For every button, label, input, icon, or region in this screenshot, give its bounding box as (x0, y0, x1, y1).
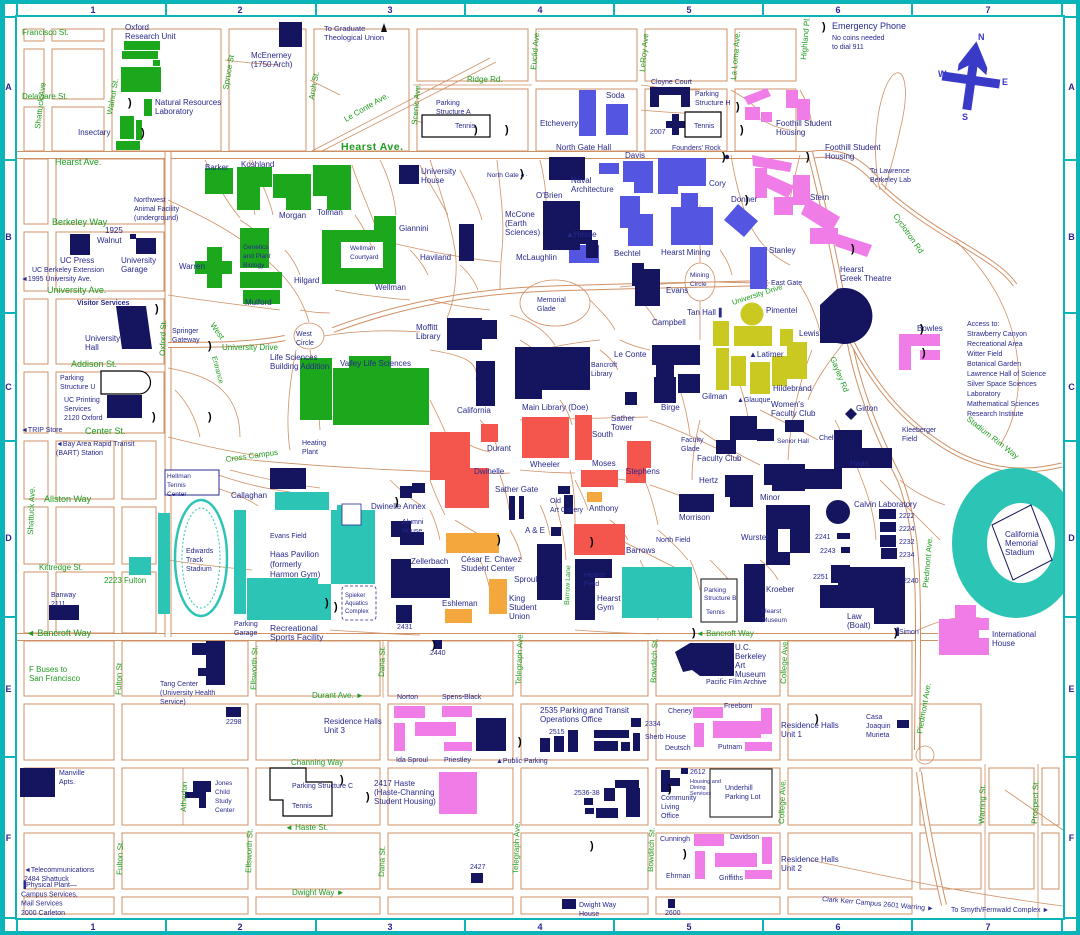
svg-text:Living: Living (661, 804, 679, 811)
svg-text:Structure U: Structure U (60, 384, 95, 391)
svg-text:Ehrman: Ehrman (666, 873, 691, 880)
svg-text:Cloyne Court: Cloyne Court (651, 79, 692, 86)
svg-text:): ) (474, 124, 478, 136)
svg-text:Parking: Parking (695, 91, 719, 98)
svg-text:Laboratory: Laboratory (155, 107, 193, 116)
svg-text:(Haste-Channing: (Haste-Channing (374, 788, 434, 797)
svg-text:◄1995 University Ave.: ◄1995 University Ave. (21, 276, 92, 283)
svg-text:Visitor Services: Visitor Services (77, 300, 130, 307)
svg-text:Callaghan: Callaghan (231, 491, 267, 500)
svg-text:F Buses to: F Buses to (29, 665, 68, 674)
svg-text:Barrow Lane: Barrow Lane (564, 565, 572, 605)
svg-text:S: S (962, 112, 968, 122)
svg-text:2224: 2224 (899, 526, 915, 533)
svg-text:Center: Center (215, 807, 235, 814)
svg-text:E: E (1002, 77, 1008, 87)
svg-text:◄Telecommunications: ◄Telecommunications (24, 867, 95, 874)
svg-text:Faculty Club: Faculty Club (771, 409, 816, 418)
svg-text:Davis: Davis (625, 151, 645, 160)
svg-text:UC Printing: UC Printing (64, 397, 100, 404)
svg-text:Stanley: Stanley (769, 246, 796, 255)
svg-text:Residence Halls: Residence Halls (324, 717, 382, 726)
svg-text:2298: 2298 (226, 719, 242, 726)
svg-text:Hearst Ave.: Hearst Ave. (55, 157, 101, 167)
svg-text:Telegraph Ave.: Telegraph Ave. (514, 632, 525, 685)
svg-text:Memorial: Memorial (537, 297, 566, 304)
svg-text:): ) (334, 601, 338, 613)
svg-text:◄Bay Area Rapid Transit: ◄Bay Area Rapid Transit (56, 441, 135, 448)
svg-text:): ) (141, 127, 145, 139)
svg-text:McCone: McCone (505, 210, 535, 219)
svg-text:Allston Way: Allston Way (44, 494, 92, 504)
svg-text:B: B (1068, 232, 1075, 242)
svg-text:Alumni: Alumni (402, 519, 424, 526)
svg-text:7: 7 (985, 5, 990, 15)
svg-text:(formerly: (formerly (270, 560, 302, 569)
svg-text:University: University (421, 167, 456, 176)
svg-text:To Lawrence: To Lawrence (870, 168, 910, 175)
svg-text:Hildebrand: Hildebrand (773, 384, 812, 393)
svg-text:): ) (518, 736, 522, 748)
svg-text:Giannini: Giannini (399, 224, 429, 233)
svg-text:Channing Way: Channing Way (291, 758, 343, 767)
svg-text:2007: 2007 (650, 129, 666, 136)
svg-text:Berkeley Way: Berkeley Way (52, 217, 108, 227)
svg-text:N: N (978, 32, 985, 42)
svg-text:Wellman: Wellman (350, 245, 376, 252)
svg-text:Natural Resources: Natural Resources (155, 98, 221, 107)
svg-text:Evans Field: Evans Field (270, 533, 307, 540)
svg-text:Oxford: Oxford (125, 23, 149, 32)
svg-text:Heating: Heating (302, 440, 326, 447)
svg-text:Dana St.: Dana St. (377, 646, 387, 677)
svg-text:): ) (822, 21, 826, 33)
svg-text:Wheeler: Wheeler (530, 460, 560, 469)
svg-text:Complex: Complex (345, 609, 369, 615)
svg-text:): ) (340, 774, 344, 786)
svg-text:▐Physical Plant—: ▐Physical Plant— (21, 880, 77, 890)
svg-text:Tennis: Tennis (167, 482, 187, 489)
svg-text:Campbell: Campbell (652, 318, 686, 327)
svg-text:Northwest: Northwest (134, 197, 166, 204)
svg-text:): ) (740, 124, 744, 136)
svg-text:Etcheverry: Etcheverry (540, 119, 578, 128)
svg-text:UC Berkeley Extension: UC Berkeley Extension (32, 267, 104, 274)
svg-text:Joaquin: Joaquin (866, 723, 891, 730)
svg-text:): ) (922, 347, 926, 359)
svg-text:Hearst: Hearst (762, 608, 781, 615)
svg-text:): ) (432, 639, 436, 651)
svg-text:Haviland: Haviland (420, 253, 451, 262)
svg-text:Ellsworth St.: Ellsworth St. (244, 828, 255, 873)
svg-text:Genetics: Genetics (243, 244, 269, 251)
svg-text:Building Addition: Building Addition (270, 362, 329, 371)
svg-text:Banway: Banway (51, 592, 76, 599)
svg-text:5: 5 (686, 922, 691, 932)
svg-text:Witter Field: Witter Field (967, 351, 1003, 358)
svg-text:César E. Chavez: César E. Chavez (461, 555, 521, 564)
svg-text:2223 Fulton: 2223 Fulton (104, 576, 146, 585)
svg-text:University Drive: University Drive (222, 343, 279, 352)
svg-text:D: D (1068, 533, 1075, 543)
svg-text:Tennis: Tennis (706, 609, 726, 616)
svg-text:▲Hesse: ▲Hesse (566, 230, 597, 239)
svg-text:Dwight Way ►: Dwight Way ► (292, 888, 345, 897)
svg-text:West: West (296, 331, 312, 338)
svg-text:): ) (128, 97, 132, 109)
svg-text:San Francisco: San Francisco (29, 674, 81, 683)
svg-text:2243: 2243 (820, 548, 836, 555)
svg-text:Hearst: Hearst (840, 265, 864, 274)
svg-text:Hearst: Hearst (597, 594, 621, 603)
svg-text:Hearst: Hearst (584, 572, 605, 579)
svg-text:University: University (121, 256, 156, 265)
svg-text:Parking Lot: Parking Lot (725, 794, 760, 801)
svg-text:E: E (1068, 684, 1074, 694)
svg-text:Circle: Circle (690, 281, 707, 288)
svg-text:): ) (851, 243, 855, 255)
svg-text:Birge: Birge (661, 403, 680, 412)
svg-text:1: 1 (90, 5, 95, 15)
svg-text:): ) (590, 536, 594, 548)
svg-text:Atherton: Atherton (179, 782, 189, 813)
svg-text:): ) (590, 840, 594, 852)
svg-text:McEnerney: McEnerney (251, 51, 291, 60)
svg-text:Unit 1: Unit 1 (781, 730, 802, 739)
svg-text:): ) (520, 168, 524, 180)
svg-text:Warring St.: Warring St. (977, 784, 987, 824)
svg-text:McLaughlin: McLaughlin (516, 253, 557, 262)
svg-text:Botanical Garden: Botanical Garden (967, 361, 1021, 368)
svg-text:Kroeber: Kroeber (766, 585, 795, 594)
svg-text:Zellerbach: Zellerbach (411, 557, 448, 566)
svg-text:7: 7 (985, 922, 990, 932)
svg-text:O'Brien: O'Brien (536, 191, 562, 200)
svg-text:(BART) Station: (BART) Station (56, 450, 103, 457)
svg-text:Edwards: Edwards (186, 548, 214, 555)
svg-text:Faculty Club: Faculty Club (697, 454, 742, 463)
svg-text:King: King (509, 594, 525, 603)
svg-text:Ida Sproul: Ida Sproul (396, 757, 428, 764)
svg-text:Haas Pavilion: Haas Pavilion (270, 550, 319, 559)
svg-text:Services: Services (64, 406, 91, 413)
svg-text:Barrows: Barrows (626, 546, 655, 555)
svg-text:Library: Library (416, 332, 440, 341)
svg-text:2: 2 (237, 922, 242, 932)
svg-text:University Ave.: University Ave. (47, 285, 106, 295)
svg-text:Morgan: Morgan (279, 211, 306, 220)
svg-text:D: D (5, 533, 12, 543)
svg-text:▲Public Parking: ▲Public Parking (496, 758, 548, 765)
svg-text:Student Housing): Student Housing) (374, 797, 436, 806)
svg-text:Sather Gate: Sather Gate (495, 485, 539, 494)
svg-text:California: California (1005, 530, 1039, 539)
svg-text:Mail Services: Mail Services (21, 901, 63, 908)
svg-text:Ridge Rd.: Ridge Rd. (467, 75, 503, 84)
svg-text:): ) (722, 151, 726, 163)
svg-text:International: International (992, 630, 1036, 639)
svg-text:Warren: Warren (179, 262, 205, 271)
svg-text:College Ave.: College Ave. (777, 779, 788, 824)
svg-text:): ) (745, 194, 749, 206)
svg-text:and Plant: and Plant (243, 253, 271, 260)
svg-text:Structure H: Structure H (695, 100, 730, 107)
svg-text:▲Latimer: ▲Latimer (749, 350, 784, 359)
svg-text:Track: Track (186, 557, 204, 564)
svg-text:Hertz: Hertz (699, 476, 718, 485)
svg-text:Union: Union (509, 612, 530, 621)
svg-text:No coins needed: No coins needed (832, 35, 885, 42)
svg-text:Wurster: Wurster (741, 533, 769, 542)
svg-text:): ) (920, 323, 924, 335)
svg-text:2612: 2612 (690, 769, 706, 776)
svg-text:Museum: Museum (762, 617, 787, 624)
svg-text:Norton: Norton (397, 694, 418, 701)
svg-text:Griffiths: Griffiths (719, 875, 743, 882)
svg-text:Jones: Jones (215, 780, 233, 787)
svg-text:Theological Union: Theological Union (324, 33, 384, 42)
svg-text:): ) (815, 713, 819, 725)
svg-text:(Boalt): (Boalt) (847, 621, 871, 630)
svg-text:Main Library (Doe): Main Library (Doe) (522, 403, 589, 412)
svg-text:A: A (1068, 82, 1075, 92)
svg-text:2440: 2440 (430, 650, 446, 657)
svg-text:Women's: Women's (771, 400, 804, 409)
svg-text:Wellman: Wellman (375, 283, 406, 292)
svg-text:Sciences): Sciences) (505, 228, 540, 237)
svg-text:Springer: Springer (172, 328, 199, 335)
svg-text:Mining: Mining (690, 272, 710, 279)
svg-text:Unit 3: Unit 3 (324, 726, 345, 735)
svg-text:◄TRIP Store: ◄TRIP Store (21, 427, 63, 434)
svg-text:to dial 911: to dial 911 (832, 44, 864, 51)
svg-text:Prospect St.: Prospect St. (1030, 780, 1041, 824)
svg-text:Sproul: Sproul (514, 575, 537, 584)
svg-text:Parking: Parking (234, 621, 258, 628)
svg-text:Bowditch St.: Bowditch St. (649, 638, 660, 683)
svg-text:Research Unit: Research Unit (125, 32, 176, 41)
svg-text:Operations Office: Operations Office (540, 715, 603, 724)
svg-text:2417 Haste: 2417 Haste (374, 779, 415, 788)
svg-text:Minor: Minor (760, 493, 780, 502)
svg-text:Manville: Manville (59, 770, 85, 777)
svg-text:): ) (208, 411, 212, 423)
svg-text:2000 Carleton: 2000 Carleton (21, 910, 65, 917)
svg-text:East Gate: East Gate (771, 280, 802, 287)
svg-text:Girton: Girton (856, 404, 878, 413)
svg-text:Soda: Soda (606, 91, 625, 100)
svg-text:Office: Office (661, 813, 679, 820)
svg-text:2120 Oxford: 2120 Oxford (64, 415, 103, 422)
svg-text:): ) (497, 534, 501, 546)
svg-text:1: 1 (90, 922, 95, 932)
svg-text:U.C.: U.C. (735, 643, 751, 652)
svg-text:Center St.: Center St. (85, 426, 126, 436)
svg-text:Glade: Glade (537, 306, 556, 313)
svg-text:Gateway: Gateway (172, 337, 200, 344)
svg-text:◄ Bancroft Way: ◄ Bancroft Way (26, 628, 92, 638)
svg-text:Murieta: Murieta (866, 732, 889, 739)
svg-text:Structure A: Structure A (436, 109, 471, 116)
svg-text:Putnam: Putnam (718, 744, 742, 751)
svg-text:Stadium: Stadium (186, 566, 212, 573)
svg-text:Fulton St.: Fulton St. (115, 841, 125, 876)
svg-text:Art: Art (735, 661, 746, 670)
svg-text:Access to:: Access to: (967, 321, 999, 328)
svg-text:Underhill: Underhill (725, 785, 753, 792)
svg-text:Pacific Film Archive: Pacific Film Archive (706, 679, 767, 686)
svg-text:Anthony: Anthony (589, 504, 618, 513)
svg-text:Field: Field (902, 436, 917, 443)
svg-text:2515: 2515 (549, 729, 565, 736)
svg-text:House: House (402, 528, 422, 535)
svg-text:House: House (992, 639, 1016, 648)
svg-text:Tang Center: Tang Center (160, 681, 199, 688)
svg-text:◄ Bancroft Way: ◄ Bancroft Way (696, 629, 754, 638)
svg-text:Student Center: Student Center (461, 564, 515, 573)
svg-text:Addison St.: Addison St. (71, 359, 117, 369)
svg-text:(University Health: (University Health (160, 690, 215, 697)
svg-text:): ) (736, 101, 740, 113)
svg-text:): ) (692, 627, 696, 639)
svg-text:2111: 2111 (51, 601, 66, 608)
svg-text:2251: 2251 (813, 574, 829, 581)
svg-text:Foothill Student: Foothill Student (776, 119, 832, 128)
svg-text:Old: Old (550, 498, 561, 505)
svg-text:Library: Library (591, 371, 613, 378)
svg-text:Circle: Circle (296, 340, 314, 347)
svg-text:2232: 2232 (899, 539, 915, 546)
svg-text:Bowditch St.: Bowditch St. (646, 827, 657, 872)
svg-text:): ) (152, 411, 156, 423)
svg-text:Walnut: Walnut (97, 236, 122, 245)
svg-text:2240: 2240 (903, 578, 919, 585)
svg-text:2241: 2241 (815, 534, 831, 541)
svg-text:4: 4 (537, 922, 542, 932)
svg-text:): ) (366, 791, 370, 803)
svg-text:(1750 Arch): (1750 Arch) (251, 60, 293, 69)
svg-text:Pimentel: Pimentel (766, 306, 797, 315)
svg-text:A: A (5, 82, 12, 92)
svg-text:(Earth: (Earth (505, 219, 527, 228)
svg-text:Spieker: Spieker (345, 593, 365, 599)
svg-text:Shattuck Ave.: Shattuck Ave. (26, 486, 37, 535)
svg-text:Cory: Cory (709, 179, 726, 188)
svg-text:Telegraph Ave.: Telegraph Ave. (511, 821, 522, 874)
svg-text:Campus Services,: Campus Services, (21, 891, 78, 898)
svg-text:Child: Child (215, 789, 230, 796)
svg-text:): ) (155, 303, 159, 315)
svg-text:Senior Hall: Senior Hall (777, 438, 809, 445)
svg-text:Architecture: Architecture (571, 185, 614, 194)
svg-text:Spens-Black: Spens-Black (442, 694, 482, 701)
svg-text:Sports Facility: Sports Facility (270, 632, 324, 642)
svg-text:Hellman: Hellman (167, 473, 191, 480)
svg-text:Tower: Tower (611, 423, 633, 432)
svg-text:4: 4 (537, 5, 542, 15)
svg-text:Francisco St.: Francisco St. (22, 28, 69, 37)
svg-text:Dwinelle: Dwinelle (474, 467, 505, 476)
svg-text:Berkeley Lab: Berkeley Lab (870, 177, 911, 184)
svg-text:Foothill Student: Foothill Student (825, 143, 881, 152)
svg-text:Law: Law (847, 612, 862, 621)
svg-text:2427: 2427 (470, 864, 486, 871)
svg-text:Unit 2: Unit 2 (781, 864, 802, 873)
svg-text:): ) (894, 627, 898, 639)
svg-text:Garage: Garage (234, 630, 257, 637)
svg-text:Aquatics: Aquatics (345, 601, 368, 607)
svg-text:Gilman: Gilman (702, 392, 727, 401)
svg-text:2334: 2334 (645, 721, 661, 728)
svg-text:Parking: Parking (60, 375, 84, 382)
svg-text:Calvin Laboratory: Calvin Laboratory (854, 500, 917, 509)
svg-text:Durant: Durant (487, 444, 512, 453)
svg-text:Chelt: Chelt (819, 435, 835, 442)
svg-text:5: 5 (686, 5, 691, 15)
svg-text:): ) (668, 783, 672, 795)
svg-text:Recreational Area: Recreational Area (967, 341, 1023, 348)
svg-text:College Ave.: College Ave. (779, 639, 790, 684)
svg-text:Evans: Evans (666, 286, 688, 295)
svg-text:(underground): (underground) (134, 215, 178, 222)
svg-text:Moses: Moses (592, 459, 616, 468)
svg-text:Tennis: Tennis (694, 123, 715, 130)
svg-text:Le Conte: Le Conte (614, 350, 647, 359)
svg-text:Lewis: Lewis (799, 329, 819, 338)
svg-text:Laboratory: Laboratory (967, 391, 1001, 398)
svg-text:Ellsworth St.: Ellsworth St. (249, 645, 260, 690)
svg-text:): ) (683, 848, 687, 860)
svg-text:3: 3 (387, 5, 392, 15)
svg-text:2: 2 (237, 5, 242, 15)
svg-text:Durant Ave. ►: Durant Ave. ► (312, 691, 364, 700)
svg-text:C: C (5, 382, 12, 392)
svg-text:Casa: Casa (866, 714, 882, 721)
svg-text:Insectary: Insectary (78, 128, 110, 137)
svg-text:Lawrence Hall of Science: Lawrence Hall of Science (967, 371, 1046, 378)
svg-text:Life Sciences: Life Sciences (270, 353, 318, 362)
svg-text:Eshleman: Eshleman (442, 599, 478, 608)
svg-text:Hearst Mining: Hearst Mining (661, 248, 710, 257)
svg-text:Housing: Housing (825, 152, 854, 161)
svg-text:Glade: Glade (681, 446, 700, 453)
svg-text:Service): Service) (160, 699, 186, 706)
svg-text:Greek Theatre: Greek Theatre (840, 274, 892, 283)
svg-text:Morrison: Morrison (679, 513, 710, 522)
svg-text:House: House (579, 911, 599, 918)
svg-text:Animal Facility: Animal Facility (134, 206, 180, 213)
svg-text:Freeborn: Freeborn (724, 703, 753, 710)
svg-text:UC Press: UC Press (60, 256, 94, 265)
svg-text:Apts.: Apts. (59, 779, 75, 786)
svg-text:Study: Study (215, 798, 232, 805)
svg-text:California: California (457, 406, 491, 415)
svg-text:Stadium: Stadium (1005, 548, 1035, 557)
svg-text:2600: 2600 (665, 910, 681, 917)
svg-text:Naval: Naval (571, 176, 592, 185)
svg-text:2431: 2431 (397, 624, 413, 631)
svg-text:): ) (325, 597, 329, 609)
svg-text:Moffitt: Moffitt (416, 323, 438, 332)
svg-text:Mulford: Mulford (245, 298, 272, 307)
svg-text:To Graduate: To Graduate (324, 24, 365, 33)
svg-text:Residence Halls: Residence Halls (781, 721, 839, 730)
svg-text:Student: Student (509, 603, 537, 612)
svg-text:Tolman: Tolman (317, 208, 343, 217)
svg-text:Biology: Biology (243, 262, 265, 269)
svg-text:Bancroft: Bancroft (591, 362, 617, 369)
svg-text:3: 3 (387, 922, 392, 932)
